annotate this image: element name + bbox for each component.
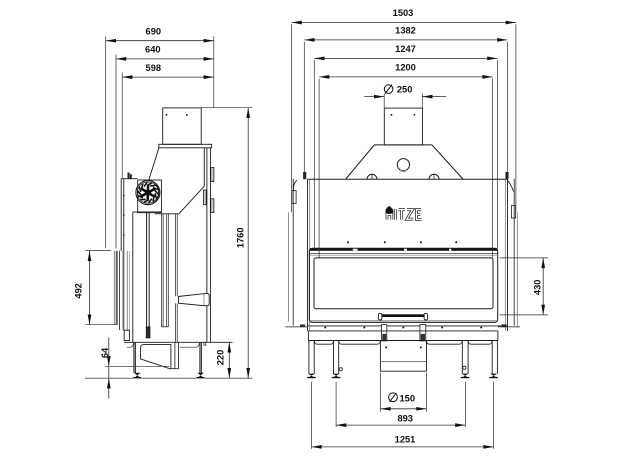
svg-text:1382: 1382 xyxy=(395,26,416,36)
svg-text:430: 430 xyxy=(533,280,543,296)
svg-text:250: 250 xyxy=(397,85,413,95)
svg-text:150: 150 xyxy=(400,394,416,404)
svg-text:1503: 1503 xyxy=(393,8,414,18)
svg-text:1247: 1247 xyxy=(395,44,416,54)
svg-text:598: 598 xyxy=(146,63,162,73)
svg-text:1200: 1200 xyxy=(395,63,416,73)
svg-text:492: 492 xyxy=(74,283,84,299)
svg-text:690: 690 xyxy=(146,26,162,36)
svg-text:64: 64 xyxy=(100,347,110,358)
svg-text:220: 220 xyxy=(215,350,225,366)
svg-text:1251: 1251 xyxy=(395,434,416,444)
svg-text:1760: 1760 xyxy=(236,227,246,248)
svg-text:893: 893 xyxy=(397,413,413,423)
svg-text:640: 640 xyxy=(145,45,161,55)
